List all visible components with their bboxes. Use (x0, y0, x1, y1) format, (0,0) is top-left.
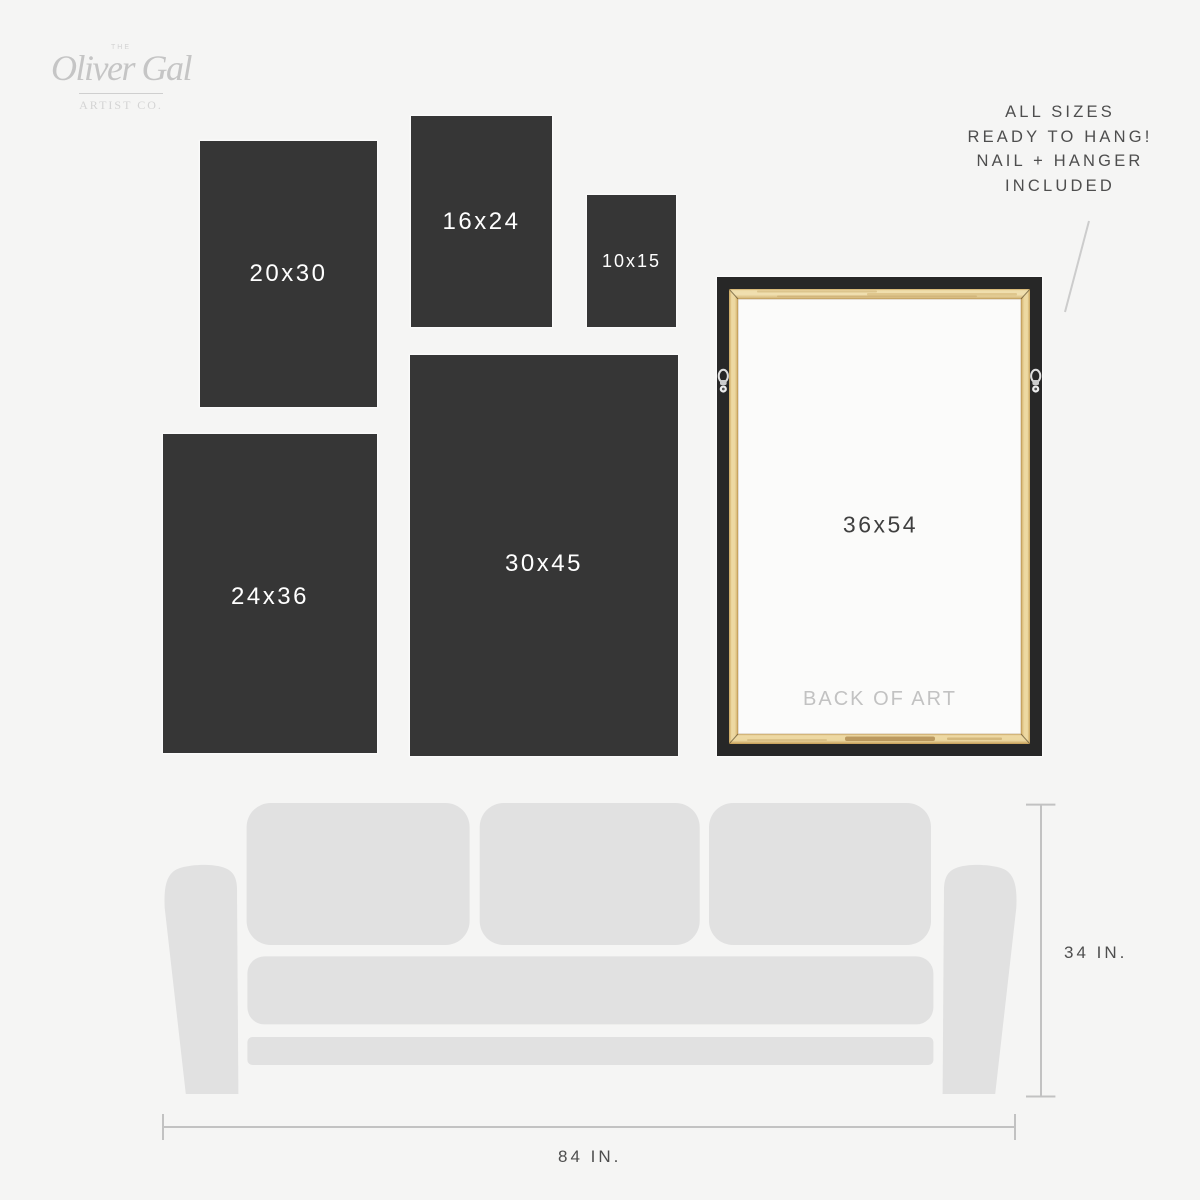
svg-text:BACK OF ART: BACK OF ART (803, 688, 957, 710)
svg-text:36x54: 36x54 (843, 512, 918, 538)
